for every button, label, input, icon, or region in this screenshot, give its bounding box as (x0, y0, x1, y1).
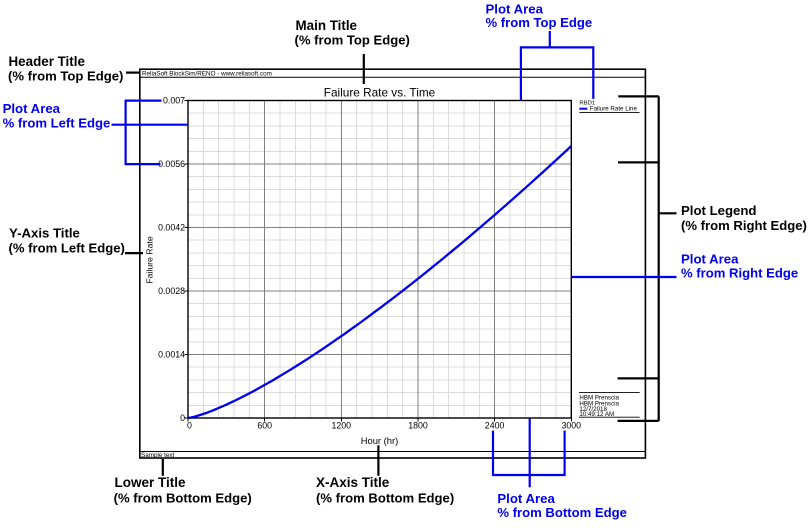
svg-text:(% from Bottom Edge): (% from Bottom Edge) (114, 491, 252, 506)
svg-text:0.0014: 0.0014 (158, 350, 185, 360)
svg-text:Sample text: Sample text (141, 452, 174, 459)
svg-text:Plot Area: Plot Area (497, 491, 555, 506)
svg-text:Failure Rate: Failure Rate (145, 236, 155, 283)
svg-text:1200: 1200 (332, 421, 352, 431)
svg-text:(% from Bottom Edge): (% from Bottom Edge) (316, 491, 454, 506)
svg-text:Hour (hr): Hour (hr) (361, 435, 399, 446)
svg-text:% from Left Edge: % from Left Edge (3, 116, 111, 131)
svg-text:Failure Rate Line: Failure Rate Line (590, 106, 638, 113)
svg-text:Main Title: Main Title (296, 18, 358, 33)
svg-text:Y-Axis Title: Y-Axis Title (9, 226, 80, 241)
svg-text:% from Top Edge: % from Top Edge (486, 15, 593, 30)
svg-text:Plot Area: Plot Area (3, 101, 61, 116)
svg-text:(% from Top Edge): (% from Top Edge) (8, 68, 123, 83)
svg-text:3000: 3000 (562, 421, 582, 431)
svg-text:(% from Left Edge): (% from Left Edge) (9, 241, 125, 256)
svg-text:0.0056: 0.0056 (158, 159, 185, 169)
svg-text:Plot Area: Plot Area (681, 252, 739, 267)
svg-text:Header Title: Header Title (9, 54, 85, 69)
svg-text:% from Bottom Edge: % from Bottom Edge (497, 505, 626, 520)
svg-text:Failure Rate vs. Time: Failure Rate vs. Time (324, 86, 436, 100)
svg-text:0.0028: 0.0028 (158, 286, 185, 296)
svg-text:2400: 2400 (485, 421, 505, 431)
svg-text:Plot Legend: Plot Legend (681, 203, 756, 218)
svg-text:0.0042: 0.0042 (158, 223, 185, 233)
svg-text:0: 0 (180, 413, 185, 423)
svg-text:600: 600 (257, 421, 272, 431)
svg-text:Lower Title: Lower Title (115, 475, 187, 490)
svg-text:(% from Right Edge): (% from Right Edge) (681, 218, 807, 233)
svg-text:0: 0 (187, 421, 192, 431)
svg-text:X-Axis Title: X-Axis Title (316, 475, 390, 490)
svg-text:ReliaSoft BlockSim/RENO - www.: ReliaSoft BlockSim/RENO - www.reliasoft.… (142, 70, 272, 77)
svg-text:% from Right Edge: % from Right Edge (681, 266, 798, 281)
svg-text:(% from Top Edge): (% from Top Edge) (295, 33, 410, 48)
svg-text:1800: 1800 (408, 421, 428, 431)
svg-text:0.007: 0.007 (163, 96, 185, 106)
